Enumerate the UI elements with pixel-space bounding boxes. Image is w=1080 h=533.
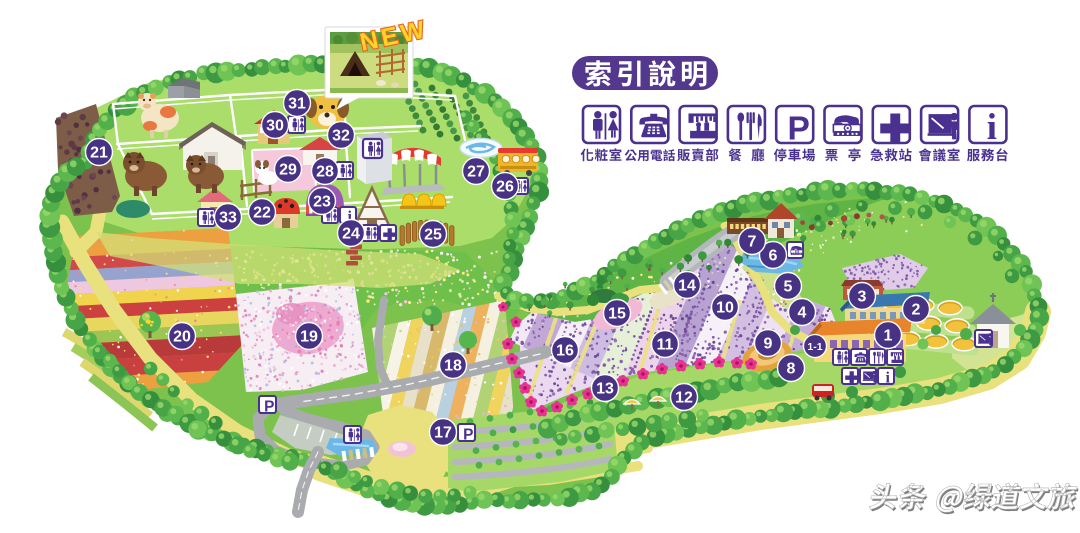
svg-text:5: 5 bbox=[784, 279, 793, 296]
svg-text:31: 31 bbox=[288, 96, 306, 113]
svg-text:23: 23 bbox=[313, 194, 331, 211]
svg-text:3: 3 bbox=[858, 289, 867, 306]
svg-text:10: 10 bbox=[716, 300, 734, 317]
svg-text:14: 14 bbox=[678, 278, 696, 295]
svg-text:4: 4 bbox=[798, 305, 807, 322]
svg-text:22: 22 bbox=[253, 205, 271, 222]
svg-text:6: 6 bbox=[769, 248, 778, 265]
svg-text:19: 19 bbox=[300, 329, 318, 346]
svg-text:18: 18 bbox=[444, 358, 462, 375]
svg-text:28: 28 bbox=[316, 164, 334, 181]
svg-text:30: 30 bbox=[266, 118, 284, 135]
svg-text:27: 27 bbox=[467, 164, 485, 181]
svg-text:2: 2 bbox=[912, 302, 921, 319]
svg-text:33: 33 bbox=[219, 210, 237, 227]
svg-text:25: 25 bbox=[424, 227, 442, 244]
svg-text:21: 21 bbox=[90, 145, 108, 162]
svg-text:24: 24 bbox=[342, 226, 360, 243]
svg-text:7: 7 bbox=[748, 234, 757, 251]
svg-text:29: 29 bbox=[279, 162, 297, 179]
svg-text:1-1: 1-1 bbox=[807, 341, 822, 353]
svg-text:8: 8 bbox=[787, 361, 796, 378]
svg-text:26: 26 bbox=[496, 179, 514, 196]
svg-text:15: 15 bbox=[608, 306, 626, 323]
svg-text:12: 12 bbox=[675, 390, 693, 407]
svg-text:9: 9 bbox=[764, 336, 773, 353]
svg-text:17: 17 bbox=[434, 425, 452, 442]
svg-text:20: 20 bbox=[173, 329, 191, 346]
svg-text:1: 1 bbox=[884, 328, 893, 345]
svg-text:11: 11 bbox=[657, 337, 674, 354]
svg-text:13: 13 bbox=[596, 381, 614, 398]
svg-text:32: 32 bbox=[332, 128, 350, 145]
svg-text:16: 16 bbox=[556, 343, 574, 360]
